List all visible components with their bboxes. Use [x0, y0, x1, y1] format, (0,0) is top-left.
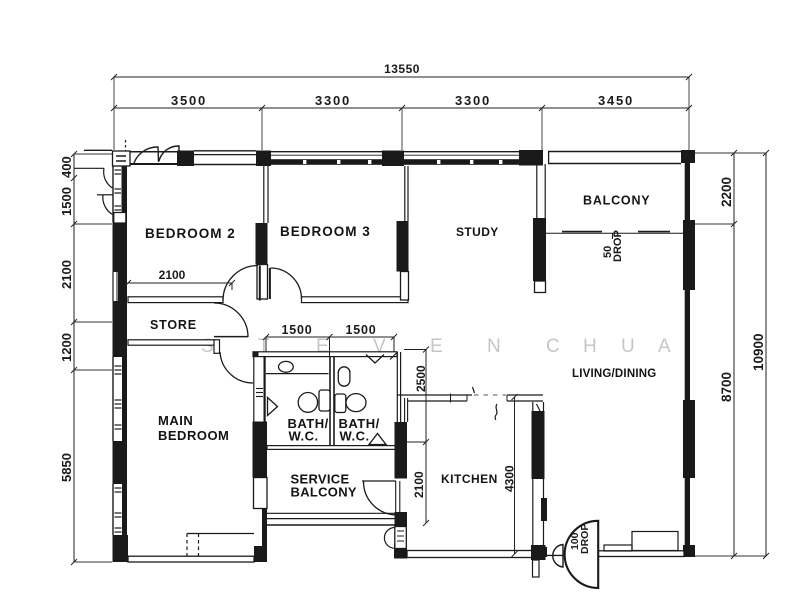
svg-text:H: H [583, 336, 597, 357]
svg-text:STUDY: STUDY [456, 225, 499, 239]
svg-text:400: 400 [59, 156, 74, 178]
svg-text:3500: 3500 [171, 93, 207, 108]
svg-text:3450: 3450 [598, 93, 634, 108]
svg-text:2200: 2200 [719, 177, 734, 207]
svg-text:2100: 2100 [59, 260, 74, 289]
svg-text:DROP: DROP [579, 524, 591, 554]
svg-text:8700: 8700 [719, 372, 734, 402]
svg-text:BEDROOM: BEDROOM [158, 428, 229, 443]
svg-text:13550: 13550 [384, 62, 420, 76]
svg-text:2100: 2100 [159, 268, 186, 282]
svg-text:3300: 3300 [455, 93, 491, 108]
svg-text:3300: 3300 [315, 93, 351, 108]
svg-text:BALCONY: BALCONY [291, 485, 357, 500]
svg-text:BALCONY: BALCONY [583, 194, 650, 208]
svg-text:C: C [546, 336, 560, 357]
svg-text:DROP: DROP [612, 230, 624, 262]
svg-text:10900: 10900 [751, 333, 766, 371]
svg-text:N: N [487, 336, 501, 357]
svg-text:1200: 1200 [59, 333, 74, 362]
svg-text:2500: 2500 [414, 365, 428, 392]
svg-text:1500: 1500 [281, 323, 312, 337]
svg-text:S: S [201, 336, 214, 357]
svg-text:1500: 1500 [59, 187, 74, 216]
svg-text:5850: 5850 [59, 453, 74, 482]
svg-text:LIVING/DINING: LIVING/DINING [572, 368, 656, 380]
svg-text:KITCHEN: KITCHEN [441, 472, 498, 486]
svg-text:E: E [430, 336, 443, 357]
svg-text:W.C.: W.C. [340, 429, 370, 444]
svg-text:1500: 1500 [345, 323, 376, 337]
svg-text:W.C.: W.C. [289, 429, 319, 444]
svg-text:2100: 2100 [412, 471, 426, 498]
svg-text:MAIN: MAIN [158, 413, 193, 428]
svg-text:STORE: STORE [150, 318, 197, 332]
svg-text:A: A [658, 336, 671, 357]
svg-text:BEDROOM 3: BEDROOM 3 [280, 224, 371, 239]
svg-text:BEDROOM 2: BEDROOM 2 [145, 226, 236, 241]
svg-text:U: U [621, 336, 635, 357]
svg-text:4300: 4300 [503, 465, 517, 492]
